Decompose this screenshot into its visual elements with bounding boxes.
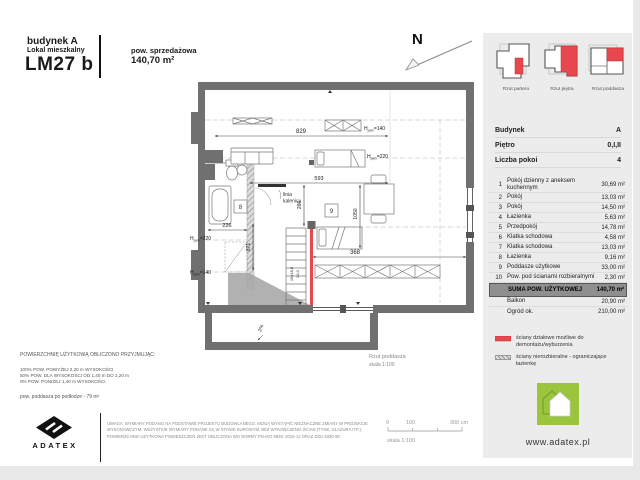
north-arrow: N xyxy=(392,28,482,78)
stairs xyxy=(286,228,306,305)
table-row: 5Przedpokój14,78 m² xyxy=(489,223,627,233)
extra-label: Ogród ok. xyxy=(507,309,595,316)
notes-title: POWIERZCHNIĘ UŻYTKOWĄ OBLICZONO PRZYJMUJ… xyxy=(20,352,195,358)
table-row: 3Pokój14,50 m² xyxy=(489,203,627,213)
window-balcony xyxy=(313,305,373,313)
height-label-140-top: Hpom=140 xyxy=(364,126,385,133)
legend-hatch-swatch xyxy=(495,355,511,360)
legend: ściany działowe możliwe do demontażu/wyb… xyxy=(495,335,623,373)
scale-300: 300 cm xyxy=(450,420,468,426)
ridge-line-icon xyxy=(258,184,286,187)
room-name: Łazienka xyxy=(507,254,602,261)
room-area: 5,63 m² xyxy=(605,215,625,221)
scale-bar: 0 100 300 cm skala 1:100 xyxy=(384,416,484,446)
legend-text: ściany działowe możliwe do demontażu/wyb… xyxy=(516,335,623,348)
thumbnail-ground-floor xyxy=(495,41,537,85)
dim-671: 671 xyxy=(246,243,252,252)
sales-area-label: pow. sprzedażowa xyxy=(131,46,197,55)
shelf-low xyxy=(233,118,272,124)
room-name: Poddasze użytkowe xyxy=(507,264,598,271)
floorplan-sheet: { "colors": { "red": "#e8474d", "green":… xyxy=(0,0,640,480)
table-row: 9Poddasze użytkowe33,00 m² xyxy=(489,263,627,273)
summary-row: SUMA POW. UŻYTKOWEJ140,70 m² xyxy=(489,283,627,297)
room-area: 14,50 m² xyxy=(601,205,625,211)
extra-row-garden: Ogród ok.210,00 m² xyxy=(489,307,627,317)
floor-plan: 8 9 xyxy=(183,74,483,374)
room-area: 2,30 m² xyxy=(605,275,625,281)
room-name: Pow. pod ścianami rozbieralnymi xyxy=(507,274,602,281)
room-area: 4,58 m² xyxy=(605,235,625,241)
info-label: Piętro xyxy=(495,142,607,149)
view-label-ground: Rzut parteru xyxy=(493,87,539,92)
skylight-outline xyxy=(225,242,247,272)
notes-rule: 0% POW. PONIŻEJ 1,40 m WYSOKOŚCI xyxy=(20,379,195,385)
extra-label: Balkon xyxy=(507,298,598,305)
area-calculation-notes: POWIERZCHNIĘ UŻYTKOWĄ OBLICZONO PRZYJMUJ… xyxy=(20,352,195,400)
extra-value: 210,00 m² xyxy=(598,309,625,315)
dim-368: 368 xyxy=(350,250,361,256)
room-name: Klatka schodowa xyxy=(507,244,598,251)
thumbnail-attic xyxy=(587,41,629,85)
adatex-brand-text: ADATEX xyxy=(24,441,86,450)
disclaimer-line: WYKONAWCZYM. WSZYSTKIE WYMIARY PODANE SĄ… xyxy=(107,427,369,433)
legend-text: ściany nierozbieralne - ograniczające ła… xyxy=(516,354,623,367)
room-name: Przedpokój xyxy=(507,224,598,231)
room-area: 14,78 m² xyxy=(601,225,625,231)
table-row: 6Klatka schodowa4,58 m² xyxy=(489,233,627,243)
dim-266: 266 xyxy=(297,201,303,210)
view-label-first: Rzut piętra xyxy=(539,87,585,92)
website-link[interactable]: www.adatex.pl xyxy=(503,437,613,447)
bathtub xyxy=(212,189,228,221)
footer-divider xyxy=(100,413,101,462)
room-name: Łazienka xyxy=(507,214,602,221)
table-and-chairs xyxy=(364,175,394,223)
scale-100: 100 xyxy=(406,420,415,426)
document-page: budynek A Lokal mieszkalny LM27 b pow. s… xyxy=(0,0,633,466)
table-row: 1Pokój dzienny z aneksem kuchennym30,69 … xyxy=(489,177,627,193)
room-name: Pokój xyxy=(507,204,598,211)
disclaimer-text: UWAGA: WYMIARY PODANO NA PODSTAWIE PROJE… xyxy=(107,421,369,440)
dim-829: 829 xyxy=(296,129,307,135)
north-label: N xyxy=(412,31,423,48)
height-label-140-left: Hpom=140 xyxy=(190,270,211,277)
dim-226: 226 xyxy=(222,223,231,229)
room-no: 9 xyxy=(491,265,502,271)
header-divider xyxy=(99,35,101,78)
room-no: 10 xyxy=(491,275,502,281)
dim-1050: 1050 xyxy=(353,208,359,219)
room-no: 3 xyxy=(491,205,502,211)
room-no: 1 xyxy=(491,182,502,188)
table-row: 10Pow. pod ścianami rozbieralnymi2,30 m² xyxy=(489,273,627,283)
dim-593: 593 xyxy=(314,176,323,182)
room-area: 13,03 m² xyxy=(601,245,625,251)
room-no: 4 xyxy=(491,215,502,221)
table-row: 7Klatka schodowa13,03 m² xyxy=(489,243,627,253)
view-label-attic: Rzut poddasza xyxy=(585,87,631,92)
legend-item-fixed-walls: ściany nierozbieralne - ograniczające ła… xyxy=(495,354,623,367)
unit-id: LM27 b xyxy=(25,54,93,76)
room-name: Klatka schodowa xyxy=(507,234,602,241)
legend-item-removable-walls: ściany działowe możliwe do demontażu/wyb… xyxy=(495,335,623,348)
info-value: 4 xyxy=(617,157,621,164)
room-no: 7 xyxy=(491,245,502,251)
notes-floor-area: pow. poddasza po podłodze - 79 m² xyxy=(20,394,195,400)
removable-wall-red xyxy=(310,229,313,305)
plan-caption-scale: skala 1:100 xyxy=(369,362,395,368)
room-no: 8 xyxy=(491,255,502,261)
adatex-knot-icon xyxy=(33,415,75,440)
room-area: 13,03 m² xyxy=(601,195,625,201)
window-right xyxy=(466,188,474,242)
highlight-red xyxy=(515,58,523,74)
info-row-rooms: Liczba pokoi4 xyxy=(495,153,621,168)
sales-area-value: 140,70 m² xyxy=(131,55,174,66)
extra-row-balcony: Balkon20,90 m² xyxy=(489,297,627,307)
unit-type-label: Lokal mieszkalny xyxy=(27,47,85,54)
stair-dim-1: 16x18,8 xyxy=(289,266,294,281)
unit-info-table: BudynekA Piętro0,I,II Liczba pokoi4 xyxy=(495,123,621,168)
disclaimer-line: POWIERZCHNIA UŻYTKOWA POMIESZCZEŃ JEST O… xyxy=(107,434,369,440)
furniture-top xyxy=(231,118,365,167)
sofa xyxy=(231,148,273,164)
stair-dim-2: 24,0 xyxy=(295,269,300,278)
info-label: Liczba pokoi xyxy=(495,157,617,164)
height-label-220-right: Hpom=220 xyxy=(367,154,388,161)
room-no: 6 xyxy=(491,235,502,241)
thumbnail-first-floor xyxy=(541,41,583,85)
building-label: budynek A xyxy=(27,36,78,47)
room-area: 30,69 m² xyxy=(601,182,625,188)
legend-red-swatch xyxy=(495,336,511,342)
room-name: Pokój dzienny z aneksem kuchennym xyxy=(507,178,598,191)
ridge-label-1: linia xyxy=(283,192,292,198)
extra-value: 20,90 m² xyxy=(601,299,625,305)
adatex-house-logo xyxy=(537,383,579,429)
north-arrowhead-icon xyxy=(406,59,419,70)
info-row-building: BudynekA xyxy=(495,123,621,138)
wall-post xyxy=(308,221,316,229)
sink xyxy=(237,165,247,175)
plan-caption-title: Rzut poddasza xyxy=(369,354,407,360)
room-no: 5 xyxy=(491,225,502,231)
room-area: 33,00 m² xyxy=(601,265,625,271)
height-label-220-left: Hpom=220 xyxy=(190,236,211,243)
highlight-red xyxy=(561,46,577,76)
nightstand xyxy=(309,160,314,165)
highlight-red xyxy=(607,48,623,61)
scale-caption: skala 1:100 xyxy=(387,438,415,444)
sidebar-panel: Rzut parteru Rzut piętra Rzut poddasza B… xyxy=(483,33,632,458)
table-row: 8Łazienka9,16 m² xyxy=(489,253,627,263)
furniture-bottom xyxy=(315,227,440,278)
room-area: 9,16 m² xyxy=(605,255,625,261)
rooms-table: 1Pokój dzienny z aneksem kuchennym30,69 … xyxy=(489,177,627,317)
door-swing-arc xyxy=(254,188,271,205)
info-value: A xyxy=(616,127,621,134)
summary-value: 140,70 m² xyxy=(597,287,624,293)
summary-label: SUMA POW. UŻYTKOWEJ xyxy=(508,287,594,294)
info-label: Budynek xyxy=(495,127,616,134)
table-row: 2Pokój13,03 m² xyxy=(489,193,627,203)
balcony-slope-label: 2% xyxy=(257,323,265,332)
scale-0: 0 xyxy=(386,420,389,426)
table-row: 4Łazienka5,63 m² xyxy=(489,213,627,223)
room-no: 2 xyxy=(491,195,502,201)
room-name: Pokój xyxy=(507,194,598,201)
info-value: 0,I,II xyxy=(607,142,621,149)
info-row-floor: Piętro0,I,II xyxy=(495,138,621,153)
